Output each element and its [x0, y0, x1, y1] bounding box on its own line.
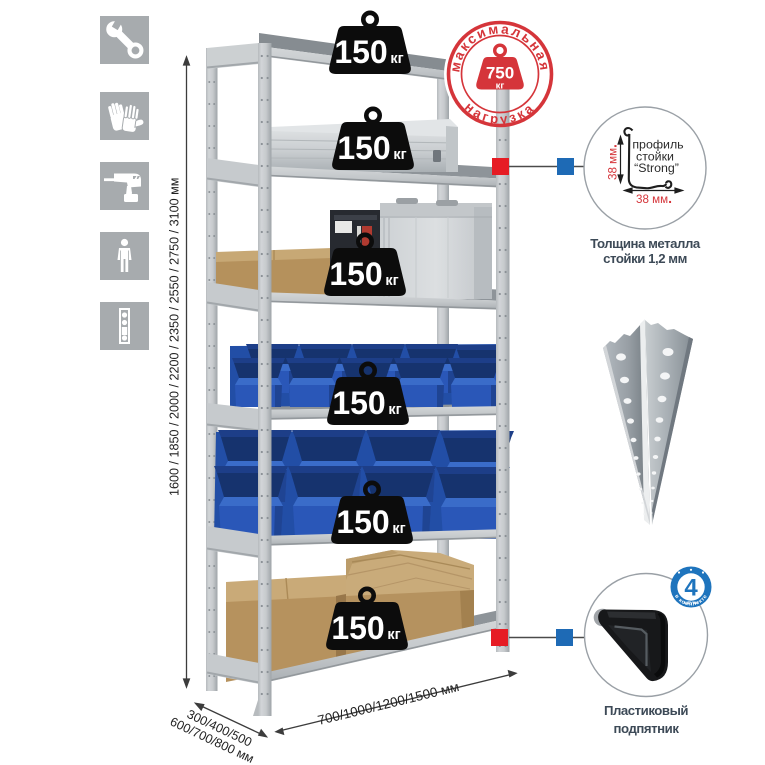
- svg-text:штуки: штуки: [684, 600, 698, 605]
- svg-text:150: 150: [331, 610, 384, 646]
- svg-text:кг: кг: [385, 273, 398, 289]
- svg-text:кг: кг: [390, 51, 403, 67]
- svg-text:4: 4: [684, 575, 698, 602]
- svg-text:кг: кг: [387, 627, 400, 643]
- svg-text:кг: кг: [496, 81, 505, 92]
- svg-text:кг: кг: [388, 402, 401, 418]
- svg-text:подпятник: подпятник: [614, 721, 680, 736]
- svg-text:Пластиковый: Пластиковый: [604, 703, 688, 718]
- svg-text:150: 150: [329, 256, 382, 292]
- svg-text:1600 / 1850 / 2000 / 2200 / 23: 1600 / 1850 / 2000 / 2200 / 2350 / 2550 …: [168, 178, 182, 496]
- svg-text:кг: кг: [393, 147, 406, 163]
- svg-text:150: 150: [336, 504, 389, 540]
- svg-text:стойки 1,2 мм: стойки 1,2 мм: [603, 251, 687, 266]
- svg-text:Толщина металла: Толщина металла: [590, 236, 701, 251]
- svg-text:38 мм.: 38 мм.: [604, 144, 620, 180]
- svg-text:150: 150: [334, 34, 387, 70]
- svg-text:150: 150: [332, 385, 385, 421]
- svg-text:кг: кг: [392, 521, 405, 537]
- svg-text:38 мм.: 38 мм.: [636, 190, 672, 206]
- svg-text:“Strong”: “Strong”: [634, 161, 679, 175]
- svg-text:150: 150: [337, 130, 390, 166]
